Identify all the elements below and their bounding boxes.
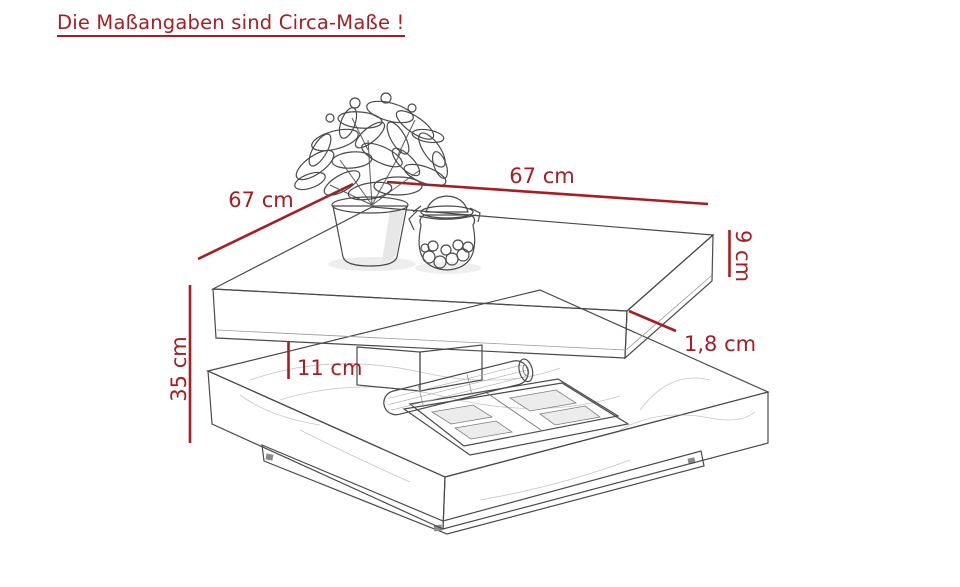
glass-jar [409,196,480,270]
table-top-slab [213,207,713,358]
dimension-label-plate-thickness: 1,8 cm [684,332,756,356]
magazine-article-blocks [432,390,600,439]
dimension-label-width-left: 67 cm [228,188,293,212]
potted-plant [292,93,451,266]
dimension-diagram: Die Maßangaben sind Circa-Maße ! [0,0,960,587]
coffee-table-drawing: 67 cm 67 cm 9 cm 1,8 cm 11 cm 35 cm [0,0,960,587]
table-foot [266,454,274,461]
pot-shadow [328,257,416,271]
dimension-labels: 67 cm 67 cm 9 cm 1,8 cm 11 cm 35 cm [167,164,756,402]
dimension-label-top-height: 9 cm [731,230,755,282]
table-plinth [262,445,704,534]
dimension-leader-plate-thickness [629,311,676,331]
dimension-label-shelf-clearance: 11 cm [297,356,362,380]
dimension-label-width-right: 67 cm [509,164,574,188]
dimension-label-total-height: 35 cm [167,336,191,401]
table-lower-shelf [208,290,768,529]
flower-pot [332,197,408,266]
